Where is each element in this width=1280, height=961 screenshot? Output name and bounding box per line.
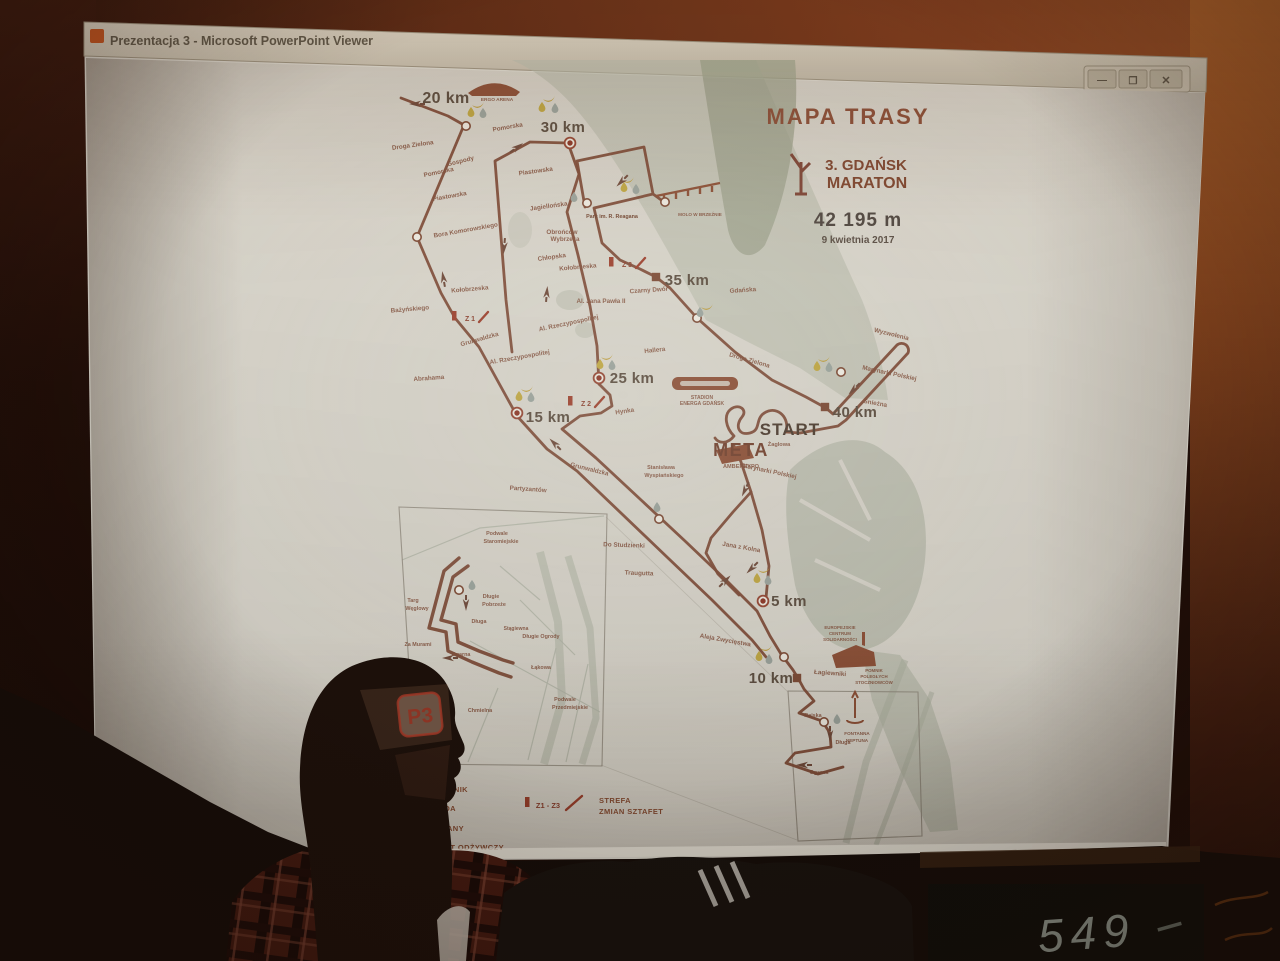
shirt-collar <box>437 906 470 961</box>
window-title: Prezentacja 3 - Microsoft PowerPoint Vie… <box>110 34 373 48</box>
window-controls: — ❐ ✕ <box>1084 66 1190 92</box>
minimize-icon: — <box>1097 75 1107 86</box>
room-wall-right <box>1190 0 1280 961</box>
close-icon: ✕ <box>1161 75 1170 87</box>
audience-member <box>496 857 914 961</box>
handwriting-549: 549 <box>1036 904 1137 961</box>
projected-logo: P3 <box>397 692 443 737</box>
powerpoint-viewer-icon <box>90 29 104 43</box>
photo-of-projected-presentation: Prezentacja 3 - Microsoft PowerPoint Vie… <box>0 0 1280 961</box>
scene: Prezentacja 3 - Microsoft PowerPoint Vie… <box>0 0 1280 961</box>
projected-logo-text: P3 <box>406 704 434 730</box>
screen-shade-y <box>86 58 1205 860</box>
audience-member-jacket <box>496 857 914 961</box>
maximize-icon: ❐ <box>1129 76 1138 87</box>
